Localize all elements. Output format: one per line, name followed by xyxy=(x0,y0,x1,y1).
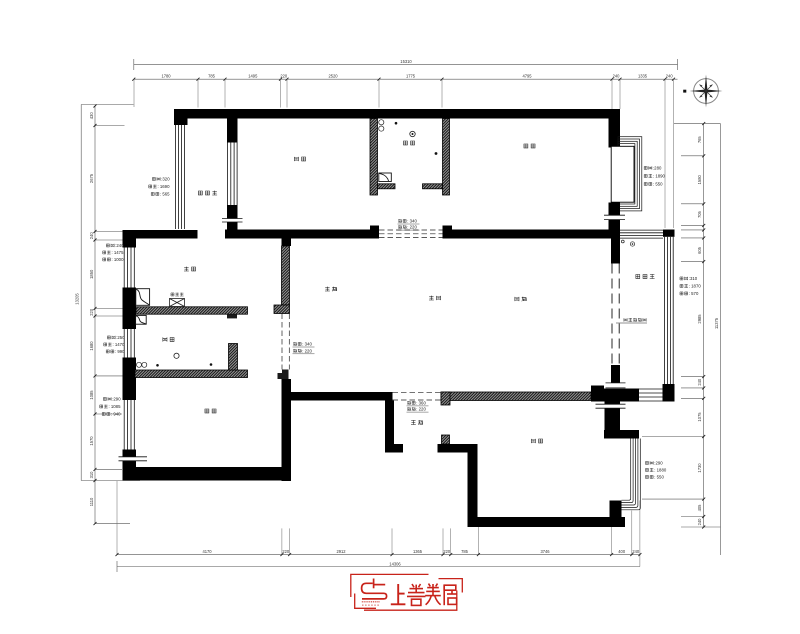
svg-text::240: :240 xyxy=(115,243,124,248)
svg-text::250: :250 xyxy=(116,335,125,340)
svg-text::290: :290 xyxy=(112,397,121,402)
svg-text:: 1470: : 1470 xyxy=(113,342,126,347)
svg-text:3746: 3746 xyxy=(540,549,550,554)
svg-text:220: 220 xyxy=(89,308,94,316)
svg-text:310: 310 xyxy=(89,471,94,479)
svg-text:1570: 1570 xyxy=(89,436,94,446)
svg-text:220: 220 xyxy=(280,73,288,78)
svg-text:: 1000: : 1000 xyxy=(112,257,125,262)
svg-text:240: 240 xyxy=(89,232,94,240)
svg-text:2520: 2520 xyxy=(328,73,338,78)
svg-text:2912: 2912 xyxy=(336,549,346,554)
svg-text:: 340: : 340 xyxy=(302,342,312,347)
svg-text:4795: 4795 xyxy=(522,73,532,78)
svg-text:1365: 1365 xyxy=(413,549,423,554)
svg-text:15310: 15310 xyxy=(400,59,412,64)
svg-text:1335: 1335 xyxy=(638,73,648,78)
svg-text:765: 765 xyxy=(697,136,702,144)
svg-text:: 220: : 220 xyxy=(416,407,426,412)
svg-text:: 1085: : 1085 xyxy=(109,404,122,409)
svg-text:785: 785 xyxy=(208,73,216,78)
svg-text:240: 240 xyxy=(666,73,674,78)
svg-text:705: 705 xyxy=(697,210,702,218)
svg-text:: 1880: : 1880 xyxy=(654,468,667,473)
svg-text:4170: 4170 xyxy=(202,549,212,554)
svg-text:: 570: : 570 xyxy=(689,291,699,296)
svg-text:14306: 14306 xyxy=(389,561,401,566)
svg-text:1730: 1730 xyxy=(697,463,702,473)
svg-text:1495: 1495 xyxy=(248,73,258,78)
svg-text::280: :280 xyxy=(653,166,662,171)
svg-text:2985: 2985 xyxy=(697,314,702,324)
svg-text:11375: 11375 xyxy=(714,317,719,329)
svg-text:: 550: : 550 xyxy=(653,182,663,187)
svg-text:2675: 2675 xyxy=(89,173,94,183)
svg-text:1680: 1680 xyxy=(89,341,94,351)
svg-text:: 360: : 360 xyxy=(416,400,426,405)
svg-text:240: 240 xyxy=(697,378,702,386)
svg-text:240: 240 xyxy=(632,549,640,554)
svg-text:: 1475: : 1475 xyxy=(112,250,125,255)
svg-text:: 340: : 340 xyxy=(407,219,417,224)
svg-text:1075: 1075 xyxy=(697,412,702,422)
svg-text:13205: 13205 xyxy=(75,293,80,305)
svg-text:240: 240 xyxy=(697,518,702,526)
svg-text:: 1870: : 1870 xyxy=(689,284,702,289)
svg-text:1780: 1780 xyxy=(161,73,171,78)
svg-text:1085: 1085 xyxy=(89,390,94,400)
svg-text::290: :290 xyxy=(654,461,663,466)
svg-text:220: 220 xyxy=(282,549,290,554)
svg-text:: 1690: : 1690 xyxy=(158,184,171,189)
svg-text:785: 785 xyxy=(461,549,469,554)
svg-text:405: 405 xyxy=(697,504,702,512)
svg-text::320: :320 xyxy=(161,177,170,182)
svg-text:1110: 1110 xyxy=(89,497,94,506)
svg-text:: 565: : 565 xyxy=(160,192,170,197)
svg-text:: 1890: : 1890 xyxy=(653,174,666,179)
svg-text:: 220: : 220 xyxy=(407,225,417,230)
svg-text:1775: 1775 xyxy=(406,73,416,78)
svg-text:: 940: : 940 xyxy=(111,412,121,417)
svg-text:: 990: : 990 xyxy=(115,349,125,354)
svg-text:605: 605 xyxy=(697,246,702,254)
svg-text:1850: 1850 xyxy=(89,269,94,279)
svg-text::310: :310 xyxy=(689,276,698,281)
svg-text:1580: 1580 xyxy=(697,175,702,185)
svg-text:220: 220 xyxy=(443,549,451,554)
svg-text:430: 430 xyxy=(89,112,94,120)
svg-text:400: 400 xyxy=(618,549,626,554)
svg-text:: 550: : 550 xyxy=(654,475,664,480)
svg-text:240: 240 xyxy=(613,73,621,78)
svg-text:: 220: : 220 xyxy=(302,348,312,353)
